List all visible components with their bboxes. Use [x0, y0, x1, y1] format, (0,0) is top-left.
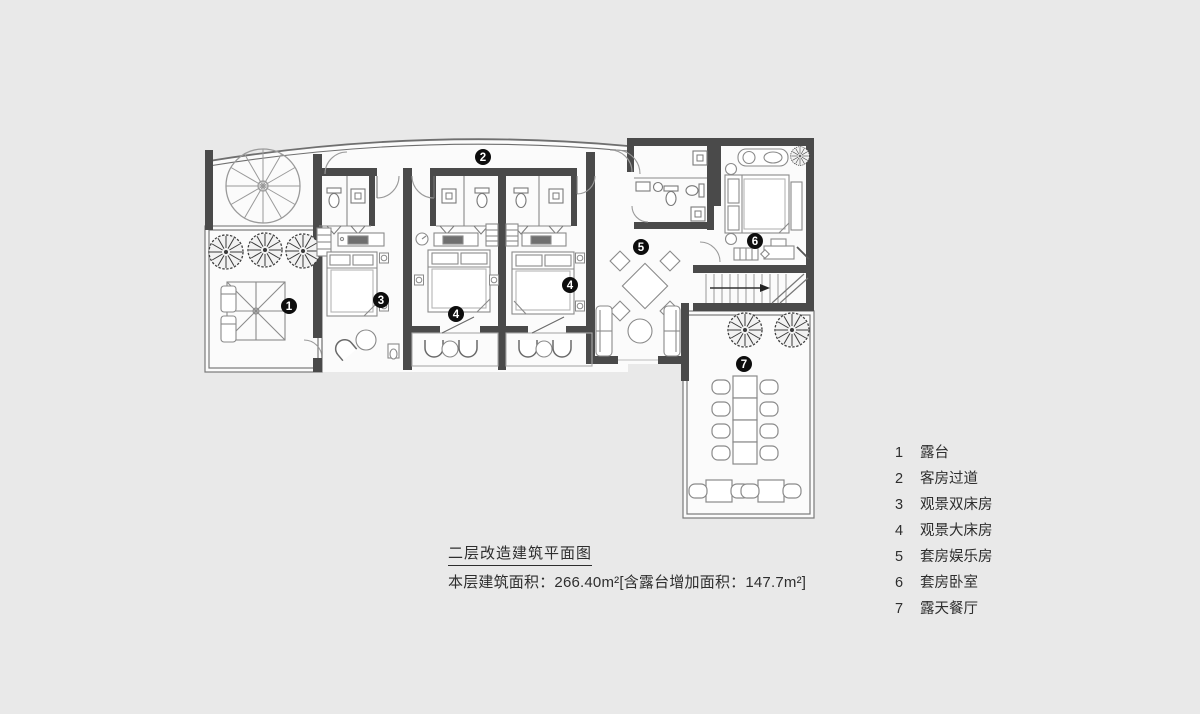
bed [725, 175, 789, 233]
svg-text:4: 4 [567, 280, 574, 292]
legend-item-corridor: 2客房过道 [895, 466, 993, 492]
title-block: 二层改造建筑平面图 本层建筑面积：266.40m²[含露台增加面积：147.7m… [448, 542, 806, 592]
nightstand [490, 275, 499, 285]
basin [654, 183, 663, 192]
coffee-table [628, 319, 652, 343]
marker-corridor: 2 [475, 149, 491, 165]
legend-item-twin-room: 3观景双床房 [895, 492, 993, 518]
marker-king-room-right: 4 [562, 277, 578, 293]
svg-text:4: 4 [453, 309, 460, 321]
svg-text:2: 2 [480, 152, 486, 164]
tv-console [338, 233, 384, 246]
floor-area-note: 本层建筑面积：266.40m²[含露台增加面积：147.7m²] [448, 571, 806, 592]
legend-item-restaurant: 7露天餐厅 [895, 596, 993, 622]
marker-terrace: 1 [281, 298, 297, 314]
tv-console [522, 233, 566, 246]
bench [791, 182, 802, 230]
nightstand [380, 253, 389, 263]
floor-plan-sheet: 1 2 3 4 4 5 6 7 1露台 2客房过道 3观景双床房 4观景大床房 … [0, 0, 1200, 714]
shower-icon [442, 189, 456, 203]
nightstand [576, 301, 585, 311]
long-dining-table [733, 376, 757, 464]
lamp [726, 234, 737, 245]
shower-icon [691, 207, 705, 221]
nightstand [576, 253, 585, 263]
tree-icon [286, 234, 320, 268]
svg-text:7: 7 [741, 359, 747, 371]
svg-text:3: 3 [378, 295, 384, 307]
room-legend: 1露台 2客房过道 3观景双床房 4观景大床房 5套房娱乐房 6套房卧室 7露天… [895, 440, 993, 622]
shower-icon [549, 189, 563, 203]
legend-item-suite-entertainment: 5套房娱乐房 [895, 544, 993, 570]
lamp [726, 164, 737, 175]
shower-icon [351, 189, 365, 203]
bed [428, 250, 490, 312]
tree-icon [775, 313, 809, 347]
legend-item-terrace: 1露台 [895, 440, 993, 466]
plant-icon [791, 147, 810, 166]
svg-text:6: 6 [752, 236, 758, 248]
tree-icon [248, 233, 282, 267]
marker-suite-bedroom: 6 [747, 233, 763, 249]
marker-suite-entertainment: 5 [633, 239, 649, 255]
nightstand [415, 275, 424, 285]
marker-twin-room: 3 [373, 292, 389, 308]
tree-icon [209, 235, 243, 269]
dresser [486, 224, 498, 246]
bathtub [738, 149, 788, 166]
legend-item-king-room: 4观景大床房 [895, 518, 993, 544]
drawing-title: 二层改造建筑平面图 [448, 542, 592, 566]
svg-text:5: 5 [638, 242, 645, 254]
sink [636, 182, 650, 191]
legend-item-suite-bedroom: 6套房卧室 [895, 570, 993, 596]
svg-text:1: 1 [286, 301, 293, 313]
marker-restaurant: 7 [736, 356, 752, 372]
shower-icon [693, 151, 707, 165]
toilet-icon [686, 184, 704, 197]
tree-icon [728, 313, 762, 347]
bed [327, 252, 377, 316]
dresser [506, 224, 518, 246]
tv-console [434, 233, 478, 246]
floor-plan-drawing: 1 2 3 4 4 5 6 7 [0, 0, 1200, 714]
marker-king-room-left: 4 [448, 306, 464, 322]
